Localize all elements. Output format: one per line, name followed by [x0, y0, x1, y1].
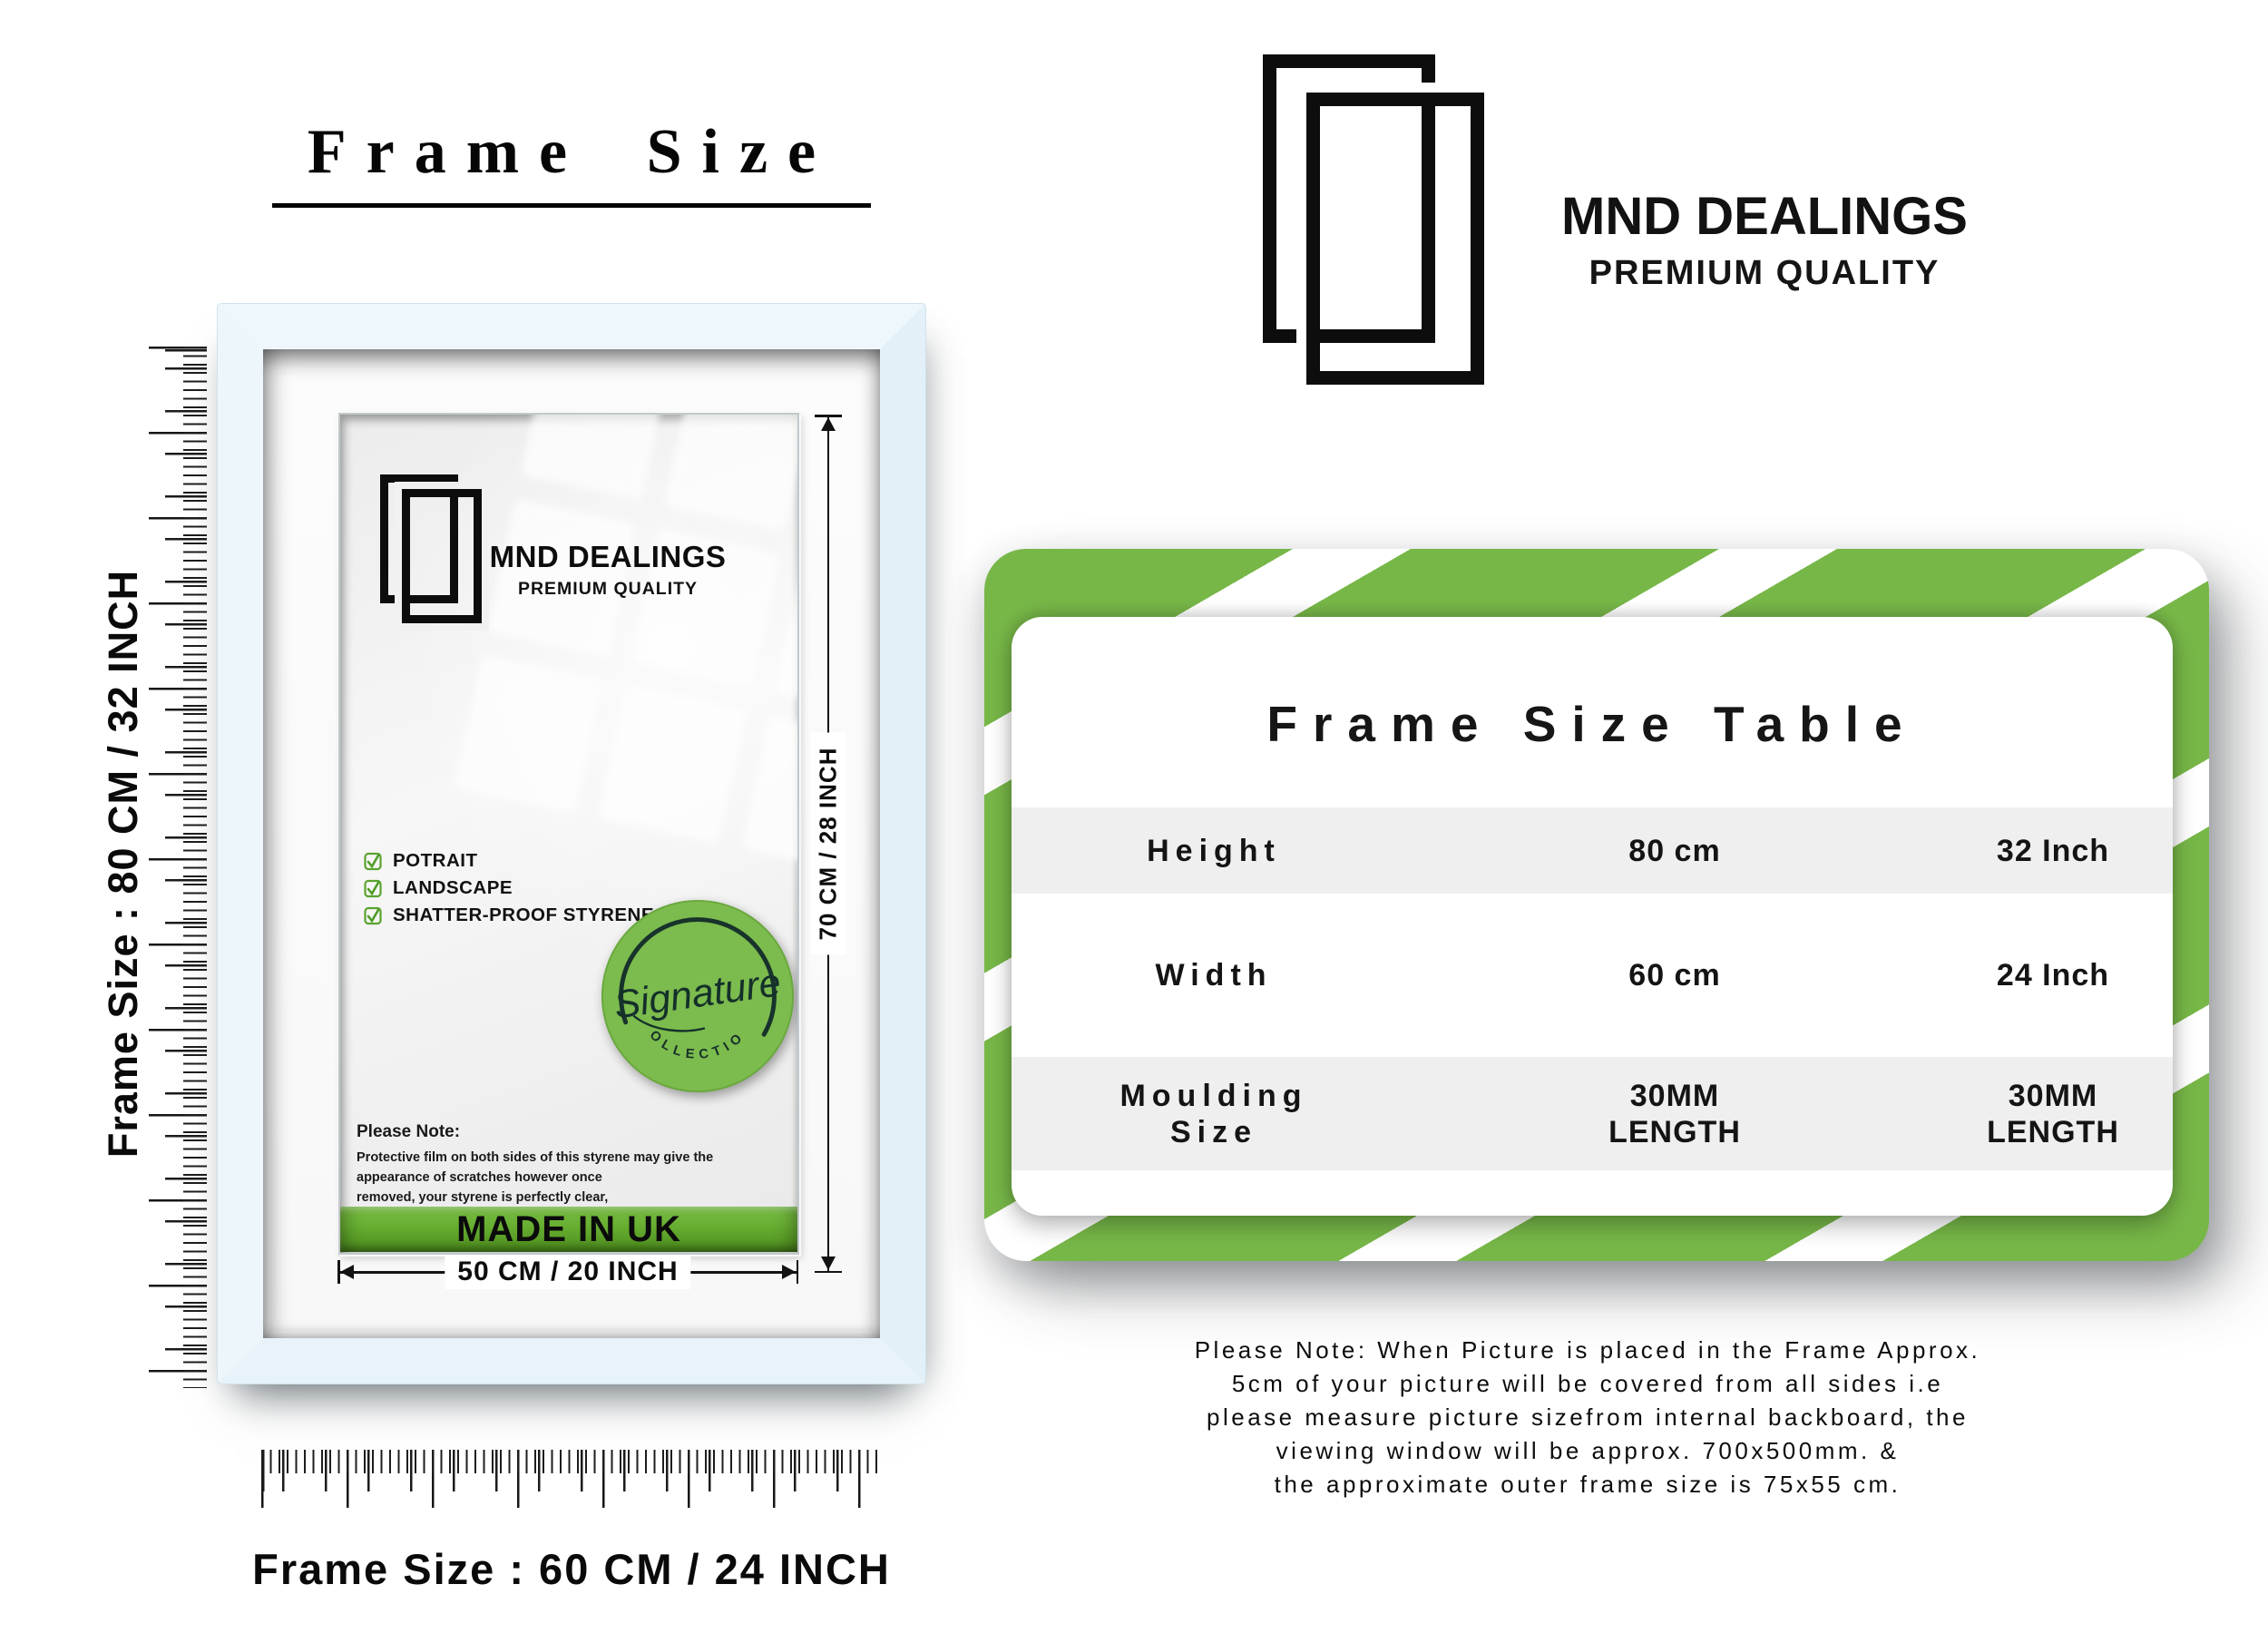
footer-note-line: 5cm of your picture will be covered from…	[989, 1367, 2186, 1401]
page-title: Frame Size	[272, 116, 871, 208]
row-label: Moulding Size	[1087, 1078, 1341, 1150]
inner-brand-name: MND DEALINGS	[476, 540, 739, 574]
brand-tagline: PREMIUM QUALITY	[1501, 254, 2028, 293]
footer-note-line: viewing window will be approx. 700x500mm…	[989, 1434, 2186, 1468]
styrene-note-title: Please Note:	[357, 1122, 783, 1142]
ruler-ticks-small	[183, 347, 207, 1388]
vertical-ruler-label: Frame Size : 80 CM / 32 INCH	[100, 301, 147, 1426]
feature-label: POTRAIT	[393, 850, 477, 872]
size-table-title: Frame Size Table	[1012, 695, 2173, 753]
horizontal-ruler-label: Frame Size : 60 CM / 24 INCH	[209, 1544, 934, 1594]
arrow-right-icon	[782, 1265, 796, 1279]
table-row: Moulding Size 30MM LENGTH 30MM LENGTH	[1012, 1057, 2173, 1170]
frame-size-infographic: Frame Size Frame Size : 80 CM / 32 INCH …	[0, 0, 2268, 1633]
row-inch-value: 24 Inch	[1997, 957, 2109, 993]
arrow-up-icon	[821, 417, 836, 431]
picture-frame: MND DEALINGS PREMIUM QUALITY POTRAIT LAN…	[218, 304, 925, 1384]
height-dimension-label: 70 CM / 28 INCH	[811, 733, 846, 955]
checkbox-icon	[364, 905, 384, 925]
table-row: Width 60 cm 24 Inch	[1012, 894, 2173, 1057]
made-in-uk-banner: MADE IN UK	[340, 1207, 797, 1252]
styrene-note: Please Note: Protective film on both sid…	[357, 1122, 783, 1208]
styrene-note-line: Protective film on both sides of this st…	[357, 1148, 783, 1188]
row-inch-value: 30MM LENGTH	[1967, 1078, 2139, 1150]
size-table-card: Frame Size Table Height 80 cm 32 Inch Wi…	[984, 549, 2209, 1261]
inner-brand-logo-icon	[380, 474, 489, 629]
frame-window: MND DEALINGS PREMIUM QUALITY POTRAIT LAN…	[338, 413, 799, 1255]
list-item: POTRAIT	[364, 848, 654, 874]
checkbox-icon	[364, 851, 384, 871]
table-row: Height 80 cm 32 Inch	[1012, 807, 2173, 894]
arrow-left-icon	[340, 1265, 354, 1279]
ruler-ticks-small	[261, 1450, 878, 1473]
inner-brand-tagline: PREMIUM QUALITY	[476, 579, 739, 600]
frame-mat: MND DEALINGS PREMIUM QUALITY POTRAIT LAN…	[270, 357, 873, 1331]
horizontal-ruler	[261, 1450, 878, 1531]
checkbox-icon	[364, 878, 384, 898]
feature-label: LANDSCAPE	[393, 877, 513, 899]
brand-header: MND DEALINGS PREMIUM QUALITY	[1501, 186, 2028, 293]
inner-brand: MND DEALINGS PREMIUM QUALITY	[476, 540, 739, 600]
width-dimension: 50 CM / 20 INCH	[337, 1258, 798, 1286]
width-dimension-label: 50 CM / 20 INCH	[445, 1255, 690, 1289]
brand-name: MND DEALINGS	[1501, 186, 2028, 247]
brand-logo-icon	[1263, 54, 1499, 399]
row-label: Width	[1155, 957, 1272, 993]
arrow-down-icon	[821, 1257, 836, 1270]
row-cm-value: 60 cm	[1628, 957, 1720, 993]
size-table: Frame Size Table Height 80 cm 32 Inch Wi…	[1012, 617, 2173, 1216]
styrene-note-line: removed, your styrene is perfectly clear…	[357, 1188, 783, 1208]
list-item: LANDSCAPE	[364, 875, 654, 901]
footer-note-line: the approximate outer frame size is 75x5…	[989, 1468, 2186, 1501]
row-inch-value: 32 Inch	[1997, 833, 2109, 869]
signature-collection-badge: Signature COLLECTION	[600, 898, 796, 1094]
row-label: Height	[1147, 833, 1281, 869]
height-dimension: 70 CM / 28 INCH	[813, 415, 844, 1273]
row-cm-value: 30MM LENGTH	[1589, 1078, 1761, 1150]
footer-note-line: Please Note: When Picture is placed in t…	[989, 1334, 2186, 1367]
footer-note: Please Note: When Picture is placed in t…	[989, 1334, 2186, 1501]
footer-note-line: please measure picture sizefrom internal…	[989, 1401, 2186, 1434]
row-cm-value: 80 cm	[1628, 833, 1720, 869]
